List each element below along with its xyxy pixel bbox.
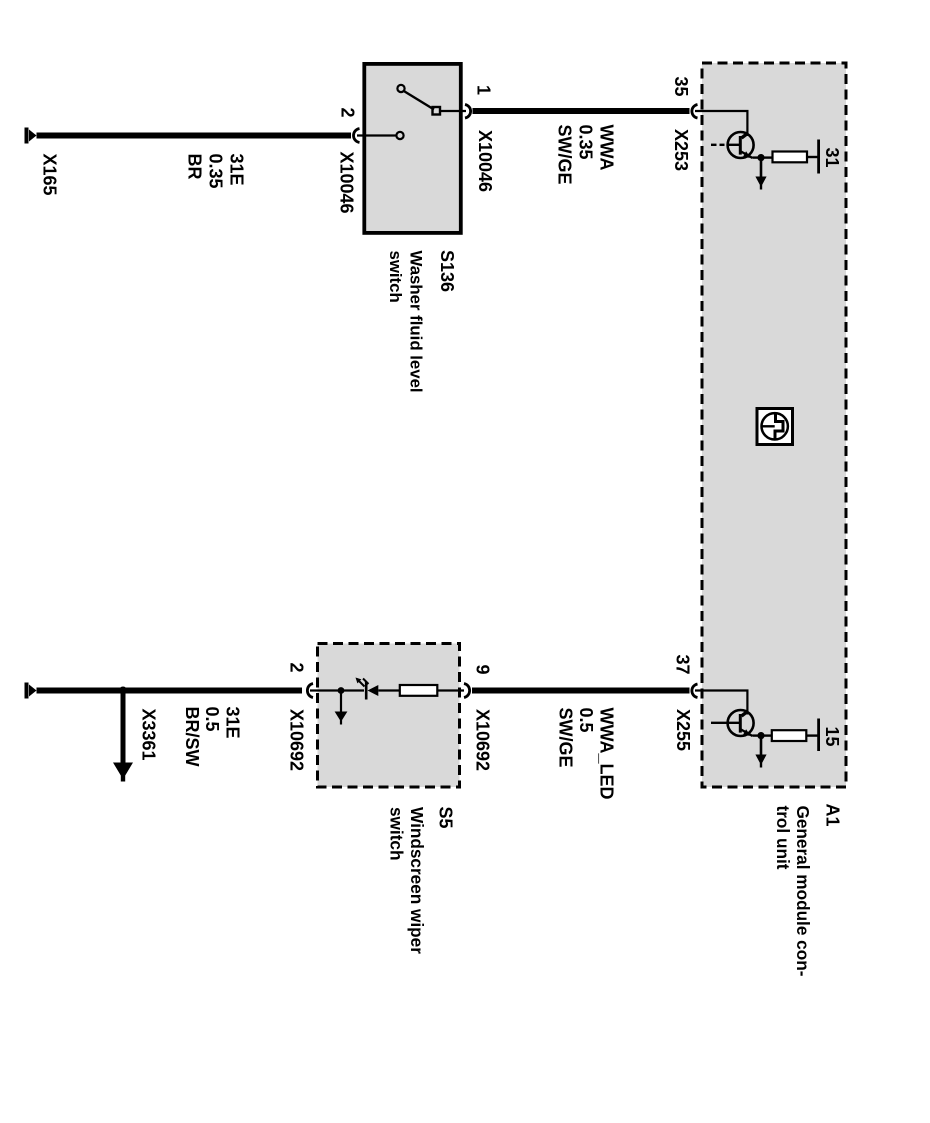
svg-text:15: 15 <box>822 727 842 747</box>
svg-text:2: 2 <box>287 663 307 673</box>
svg-text:37: 37 <box>673 655 693 675</box>
svg-text:X255: X255 <box>673 709 693 751</box>
svg-text:X10046: X10046 <box>337 152 357 214</box>
svg-text:9: 9 <box>473 665 493 675</box>
svg-text:X253: X253 <box>671 129 691 171</box>
svg-text:X10046: X10046 <box>475 130 495 192</box>
svg-text:A1: A1 <box>823 804 843 827</box>
svg-text:X3361: X3361 <box>139 709 159 761</box>
svg-text:35: 35 <box>671 77 691 97</box>
svg-text:X10692: X10692 <box>287 709 307 771</box>
svg-text:X10692: X10692 <box>473 709 493 771</box>
svg-text:2: 2 <box>338 108 358 118</box>
svg-text:X165: X165 <box>40 154 60 196</box>
svg-text:31: 31 <box>822 148 842 168</box>
svg-text:1: 1 <box>474 85 494 95</box>
svg-text:S136: S136 <box>437 250 457 292</box>
svg-text:S5: S5 <box>436 807 456 829</box>
